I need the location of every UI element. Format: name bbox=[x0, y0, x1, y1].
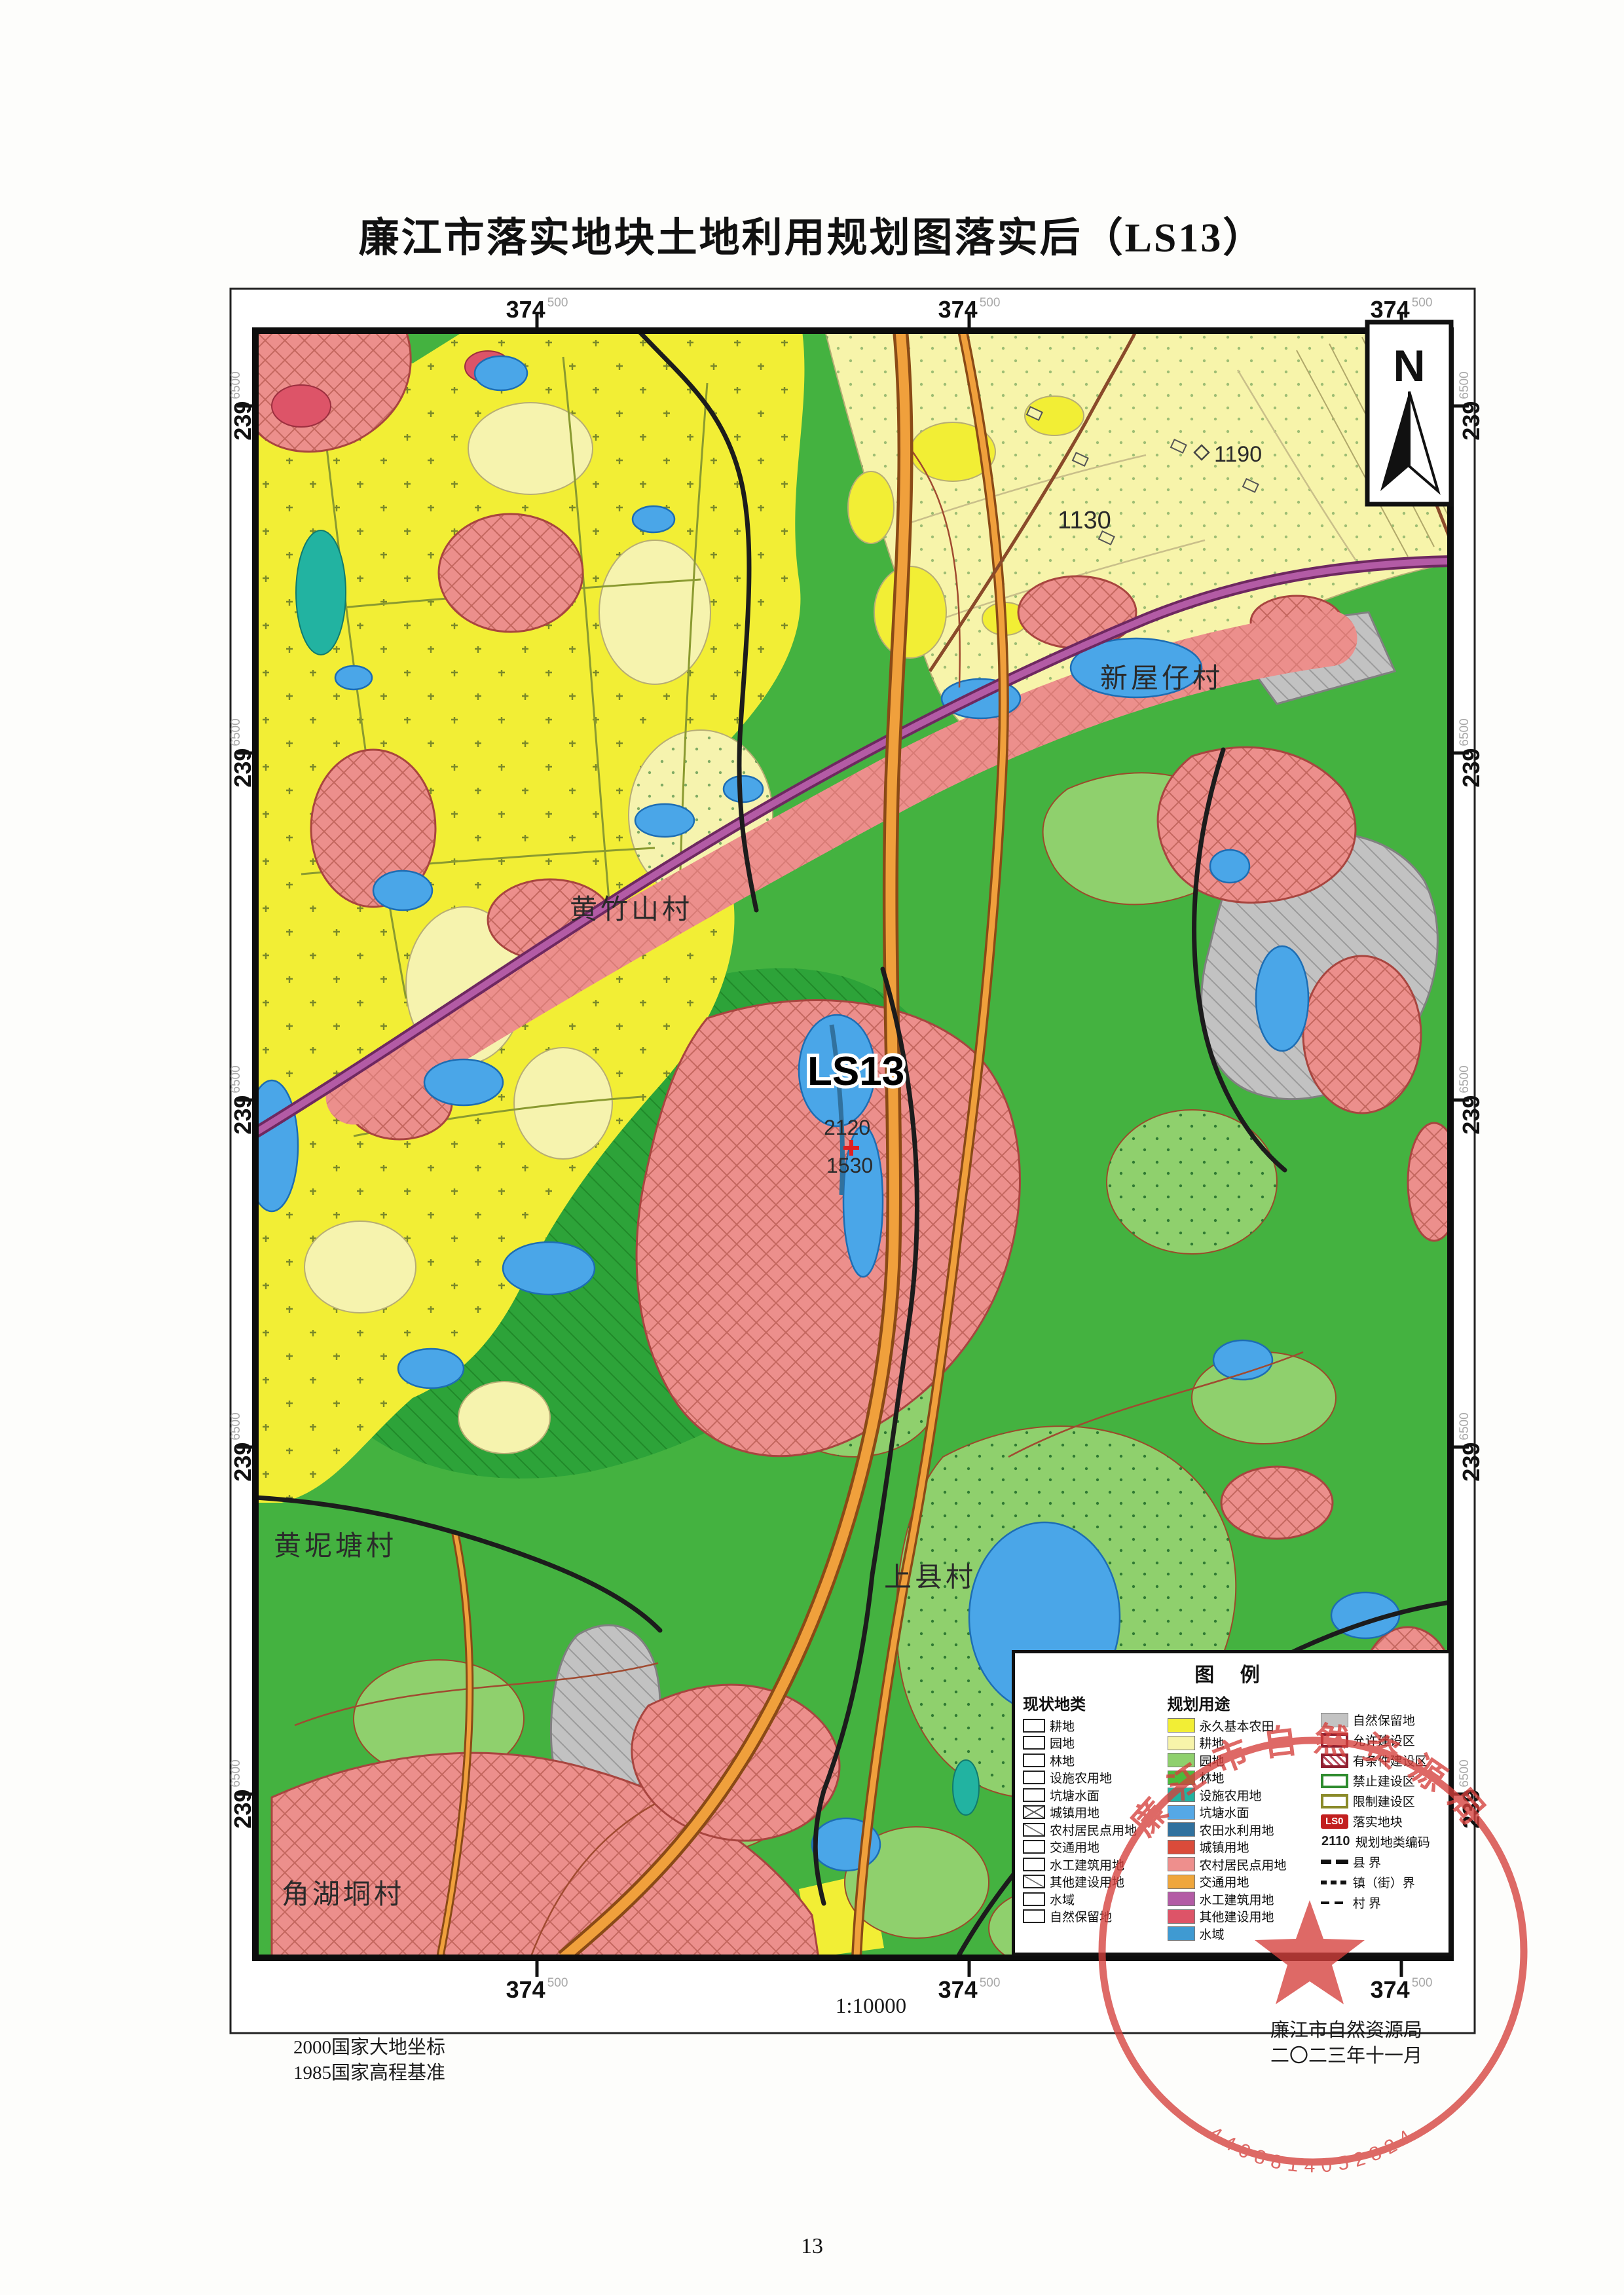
village-label-shangxian: 上县村 bbox=[884, 1562, 976, 1592]
legend-color-swatch bbox=[1168, 1718, 1195, 1733]
legend-item-icon bbox=[1321, 1753, 1348, 1768]
easting-label: 374500 bbox=[507, 296, 566, 323]
legend-item: 耕地 bbox=[1023, 1717, 1162, 1735]
legend-item-label: 耕地 bbox=[1200, 1734, 1225, 1752]
datum-note: 2000国家大地坐标 1985国家高程基准 bbox=[293, 2035, 445, 2086]
legend-planned-list: 永久基本农田 耕地 园地 bbox=[1168, 1717, 1316, 1943]
legend-item-icon bbox=[1023, 1875, 1045, 1888]
legend-current-column: 现状地类 耕地 园地 bbox=[1023, 1690, 1162, 1943]
agency-block: 廉江市自然资源局 二〇二三年十一月 bbox=[1270, 2018, 1467, 2069]
legend-item-label: 林地 bbox=[1050, 1752, 1075, 1769]
agency-date: 二〇二三年十一月 bbox=[1270, 2044, 1467, 2069]
northing-label: 2396500 bbox=[230, 1064, 256, 1136]
legend-item: 其他建设用地 bbox=[1168, 1908, 1316, 1926]
legend-item-label: 耕地 bbox=[1050, 1717, 1075, 1735]
datum-line2: 1985国家高程基准 bbox=[293, 2061, 445, 2086]
village-label-jiaohudong: 角湖垌村 bbox=[282, 1879, 405, 1909]
legend-item-label: 设施农用地 bbox=[1200, 1786, 1262, 1804]
legend-item: 水工建筑用地 bbox=[1023, 1856, 1162, 1873]
legend-planned-header: 规划用途 bbox=[1168, 1691, 1316, 1714]
legend-zones-column: 自然保留地 允许建设区 有条件建设区 bbox=[1321, 1690, 1442, 1943]
legend-item: 永久基本农田 bbox=[1168, 1717, 1316, 1735]
legend-item: 农村居民点用地 bbox=[1168, 1856, 1316, 1873]
legend-item: 园地 bbox=[1023, 1735, 1162, 1752]
legend-zones-list: 自然保留地 允许建设区 有条件建设区 bbox=[1321, 1710, 1442, 1913]
northing-label: 2396500 bbox=[230, 1758, 256, 1830]
village-label-huangzhushan: 黄竹山村 bbox=[570, 894, 693, 925]
legend-item-label: 村 界 bbox=[1353, 1894, 1381, 1911]
legend-item-icon: LS0 bbox=[1321, 1814, 1348, 1829]
legend-item: 水域 bbox=[1168, 1925, 1316, 1943]
legend-item: 坑塘水面 bbox=[1168, 1804, 1316, 1822]
legend-item-label: 水工建筑用地 bbox=[1050, 1856, 1124, 1873]
legend-color-swatch bbox=[1168, 1926, 1195, 1941]
legend-item: 有条件建设区 bbox=[1321, 1750, 1442, 1771]
legend-item-icon bbox=[1321, 1901, 1348, 1904]
legend-item-icon bbox=[1321, 1794, 1348, 1808]
legend-color-swatch bbox=[1168, 1753, 1195, 1767]
legend-item: 2110 规划地类编码 bbox=[1321, 1831, 1442, 1852]
legend-item-icon bbox=[1023, 1840, 1045, 1854]
legend-item-label: 禁止建设区 bbox=[1353, 1772, 1415, 1790]
legend-item-label: 允许建设区 bbox=[1353, 1731, 1415, 1749]
legend-item-label: 规划地类编码 bbox=[1356, 1833, 1430, 1850]
legend-color-swatch bbox=[1168, 1875, 1195, 1889]
legend-item-label: 永久基本农田 bbox=[1200, 1717, 1274, 1735]
code-label-1190: 1190 bbox=[1214, 442, 1262, 467]
legend-item: 园地 bbox=[1168, 1752, 1316, 1769]
legend-item-icon: 2110 bbox=[1321, 1835, 1351, 1849]
legend-item-icon bbox=[1321, 1713, 1348, 1727]
page-number: 13 bbox=[773, 2234, 851, 2259]
legend-item-icon bbox=[1023, 1753, 1045, 1767]
legend-current-header: 现状地类 bbox=[1023, 1691, 1162, 1714]
easting-label: 374500 bbox=[1372, 1976, 1431, 2004]
legend-item: 农田水利用地 bbox=[1168, 1821, 1316, 1839]
plan-code-upper: 2120 bbox=[824, 1116, 870, 1139]
legend-item-icon bbox=[1023, 1736, 1045, 1750]
northing-label: 2396500 bbox=[1458, 370, 1485, 442]
legend-item: 城镇用地 bbox=[1023, 1804, 1162, 1822]
legend-item-icon bbox=[1023, 1788, 1045, 1802]
legend-item: 设施农用地 bbox=[1168, 1786, 1316, 1804]
northing-label: 2396500 bbox=[1458, 1064, 1485, 1136]
northing-label: 2396500 bbox=[230, 1411, 256, 1483]
legend-item-label: 有条件建设区 bbox=[1353, 1752, 1428, 1769]
legend-item-icon bbox=[1321, 1774, 1348, 1788]
legend-color-swatch bbox=[1168, 1840, 1195, 1854]
village-label-huangnitang: 黄坭塘村 bbox=[274, 1530, 397, 1561]
scanned-map-page: 廉江市落实地块土地利用规划图落实后（LS13） bbox=[0, 0, 1624, 2295]
legend-color-swatch bbox=[1168, 1892, 1195, 1906]
legend-item-label: 水域 bbox=[1200, 1925, 1225, 1943]
legend-item-label: 交通用地 bbox=[1050, 1838, 1099, 1856]
legend-item: 设施农用地 bbox=[1023, 1769, 1162, 1787]
legend-item-icon bbox=[1023, 1909, 1045, 1923]
legend-item: 坑塘水面 bbox=[1023, 1786, 1162, 1804]
legend-item-label: 坑塘水面 bbox=[1050, 1786, 1099, 1804]
legend-item-label: 坑塘水面 bbox=[1200, 1803, 1249, 1821]
legend-item: 交通用地 bbox=[1023, 1839, 1162, 1856]
legend-item: 禁止建设区 bbox=[1321, 1771, 1442, 1791]
legend-color-swatch bbox=[1168, 1736, 1195, 1750]
legend-item-icon bbox=[1023, 1805, 1045, 1819]
legend-item: 其他建设用地 bbox=[1023, 1873, 1162, 1891]
easting-label: 374500 bbox=[507, 1976, 566, 2004]
village-label-xinwuzai: 新屋仔村 bbox=[1100, 663, 1223, 693]
legend-item-label: 镇（街）界 bbox=[1353, 1873, 1415, 1891]
legend-item: 自然保留地 bbox=[1023, 1908, 1162, 1926]
legend-item: 县 界 bbox=[1321, 1852, 1442, 1872]
legend-item-label: 园地 bbox=[1200, 1752, 1225, 1769]
legend-item-label: 水工建筑用地 bbox=[1200, 1890, 1274, 1908]
legend-item: 水工建筑用地 bbox=[1168, 1890, 1316, 1908]
legend-item: 限制建设区 bbox=[1321, 1791, 1442, 1811]
northing-label: 2396500 bbox=[230, 370, 256, 442]
legend-item-label: 县 界 bbox=[1353, 1853, 1381, 1871]
scale-label: 1:10000 bbox=[805, 1992, 936, 2021]
datum-line1: 2000国家大地坐标 bbox=[293, 2035, 445, 2061]
legend-item-label: 农村居民点用地 bbox=[1050, 1821, 1137, 1839]
code-label-1130: 1130 bbox=[1058, 507, 1111, 534]
north-label: N bbox=[1393, 341, 1425, 391]
legend-item-icon bbox=[1023, 1771, 1045, 1784]
northing-label: 2396500 bbox=[230, 717, 256, 789]
legend-item-icon bbox=[1321, 1860, 1348, 1864]
legend-item: 交通用地 bbox=[1168, 1873, 1316, 1891]
legend-color-swatch bbox=[1168, 1857, 1195, 1871]
legend-color-swatch bbox=[1168, 1805, 1195, 1820]
legend-color-swatch bbox=[1168, 1771, 1195, 1785]
legend-item-icon bbox=[1023, 1823, 1045, 1837]
easting-label: 374500 bbox=[1372, 296, 1431, 323]
legend-item-icon bbox=[1321, 1881, 1348, 1884]
legend-color-swatch bbox=[1168, 1788, 1195, 1802]
legend-item: 农村居民点用地 bbox=[1023, 1821, 1162, 1839]
legend-item-icon bbox=[1023, 1858, 1045, 1871]
easting-label: 374500 bbox=[940, 296, 999, 323]
legend-item-label: 林地 bbox=[1200, 1769, 1225, 1786]
legend-item-label: 限制建设区 bbox=[1353, 1792, 1415, 1810]
legend-item-label: 设施农用地 bbox=[1050, 1769, 1112, 1786]
legend-item-label: 自然保留地 bbox=[1353, 1711, 1415, 1729]
legend-item-icon bbox=[1023, 1719, 1045, 1733]
legend-item-label: 落实地块 bbox=[1353, 1812, 1403, 1830]
legend-item: 村 界 bbox=[1321, 1892, 1442, 1913]
legend-item-label: 园地 bbox=[1050, 1734, 1075, 1752]
legend-item-label: 其他建设用地 bbox=[1200, 1907, 1274, 1925]
plan-code-lower: 1530 bbox=[826, 1154, 873, 1177]
legend-item-label: 农村居民点用地 bbox=[1200, 1856, 1287, 1873]
legend-item-label: 自然保留地 bbox=[1050, 1907, 1112, 1925]
legend-item-label: 城镇用地 bbox=[1200, 1838, 1249, 1856]
legend-item-icon bbox=[1321, 1733, 1348, 1748]
legend-item: 林地 bbox=[1023, 1752, 1162, 1769]
easting-label: 374500 bbox=[940, 1976, 999, 2004]
legend-item: 允许建设区 bbox=[1321, 1730, 1442, 1750]
northing-label: 2396500 bbox=[1458, 1411, 1485, 1483]
page-title: 廉江市落实地块土地利用规划图落实后（LS13） bbox=[0, 204, 1624, 263]
legend-item: 镇（街）界 bbox=[1321, 1872, 1442, 1892]
legend-item: 城镇用地 bbox=[1168, 1839, 1316, 1856]
legend-planned-column: 规划用途 永久基本农田 耕地 bbox=[1168, 1690, 1316, 1943]
legend-item: LS0 落实地块 bbox=[1321, 1811, 1442, 1831]
plot-code-label: LS13 bbox=[807, 1049, 904, 1094]
legend-item: 林地 bbox=[1168, 1769, 1316, 1787]
northing-label: 2396500 bbox=[1458, 717, 1485, 789]
legend-box: 图 例 现状地类 耕地 园地 bbox=[1012, 1650, 1452, 1956]
legend-item-icon bbox=[1023, 1892, 1045, 1906]
legend-item-label: 其他建设用地 bbox=[1050, 1873, 1124, 1890]
legend-item-label: 城镇用地 bbox=[1050, 1803, 1099, 1821]
legend-item-label: 交通用地 bbox=[1200, 1873, 1249, 1890]
northing-label: 2396500 bbox=[1458, 1758, 1485, 1830]
north-arrow: N bbox=[1367, 322, 1451, 504]
legend-title: 图 例 bbox=[1023, 1659, 1442, 1687]
legend-color-swatch bbox=[1168, 1822, 1195, 1837]
agency-name: 廉江市自然资源局 bbox=[1270, 2018, 1467, 2044]
legend-item: 耕地 bbox=[1168, 1735, 1316, 1752]
legend-item: 水域 bbox=[1023, 1890, 1162, 1908]
legend-item: 自然保留地 bbox=[1321, 1710, 1442, 1730]
legend-item-label: 水域 bbox=[1050, 1890, 1075, 1908]
legend-item-label: 农田水利用地 bbox=[1200, 1821, 1274, 1839]
legend-color-swatch bbox=[1168, 1909, 1195, 1924]
legend-current-list: 耕地 园地 林地 bbox=[1023, 1717, 1162, 1925]
